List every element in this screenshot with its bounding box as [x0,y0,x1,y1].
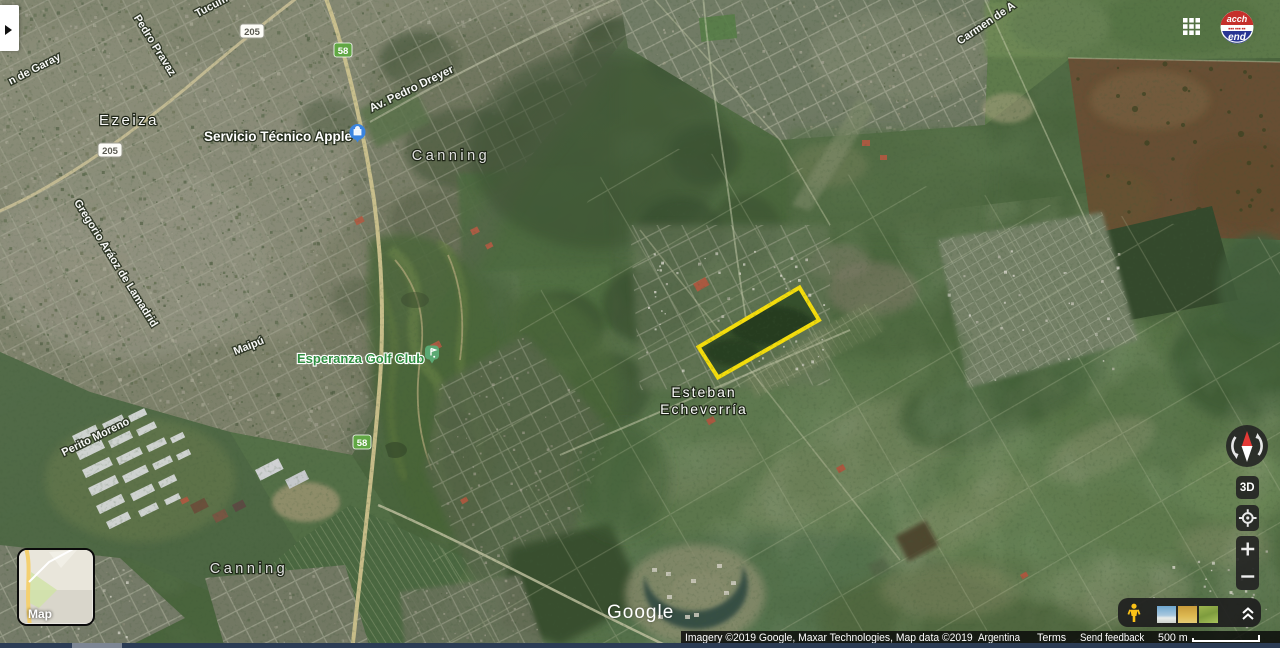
svg-text:Esperanza Golf Club: Esperanza Golf Club [297,351,424,366]
svg-text:Echeverría: Echeverría [660,401,748,417]
svg-text:acch: acch [1227,14,1248,24]
svg-text:Map: Map [28,607,52,621]
svg-text:Ezeiza: Ezeiza [99,112,159,129]
svg-text:205: 205 [244,27,261,38]
svg-text:58: 58 [357,438,368,449]
svg-text:205: 205 [102,146,119,157]
svg-text:Canning: Canning [210,561,289,577]
svg-text:Servicio Técnico Apple: Servicio Técnico Apple [204,129,353,144]
svg-text:58: 58 [338,46,349,57]
svg-text:Esteban: Esteban [671,384,736,400]
svg-text:Canning: Canning [412,148,491,164]
svg-text:end: end [1228,32,1247,43]
svg-text:■■■ ■■■ ■■: ■■■ ■■■ ■■ [1228,27,1245,31]
